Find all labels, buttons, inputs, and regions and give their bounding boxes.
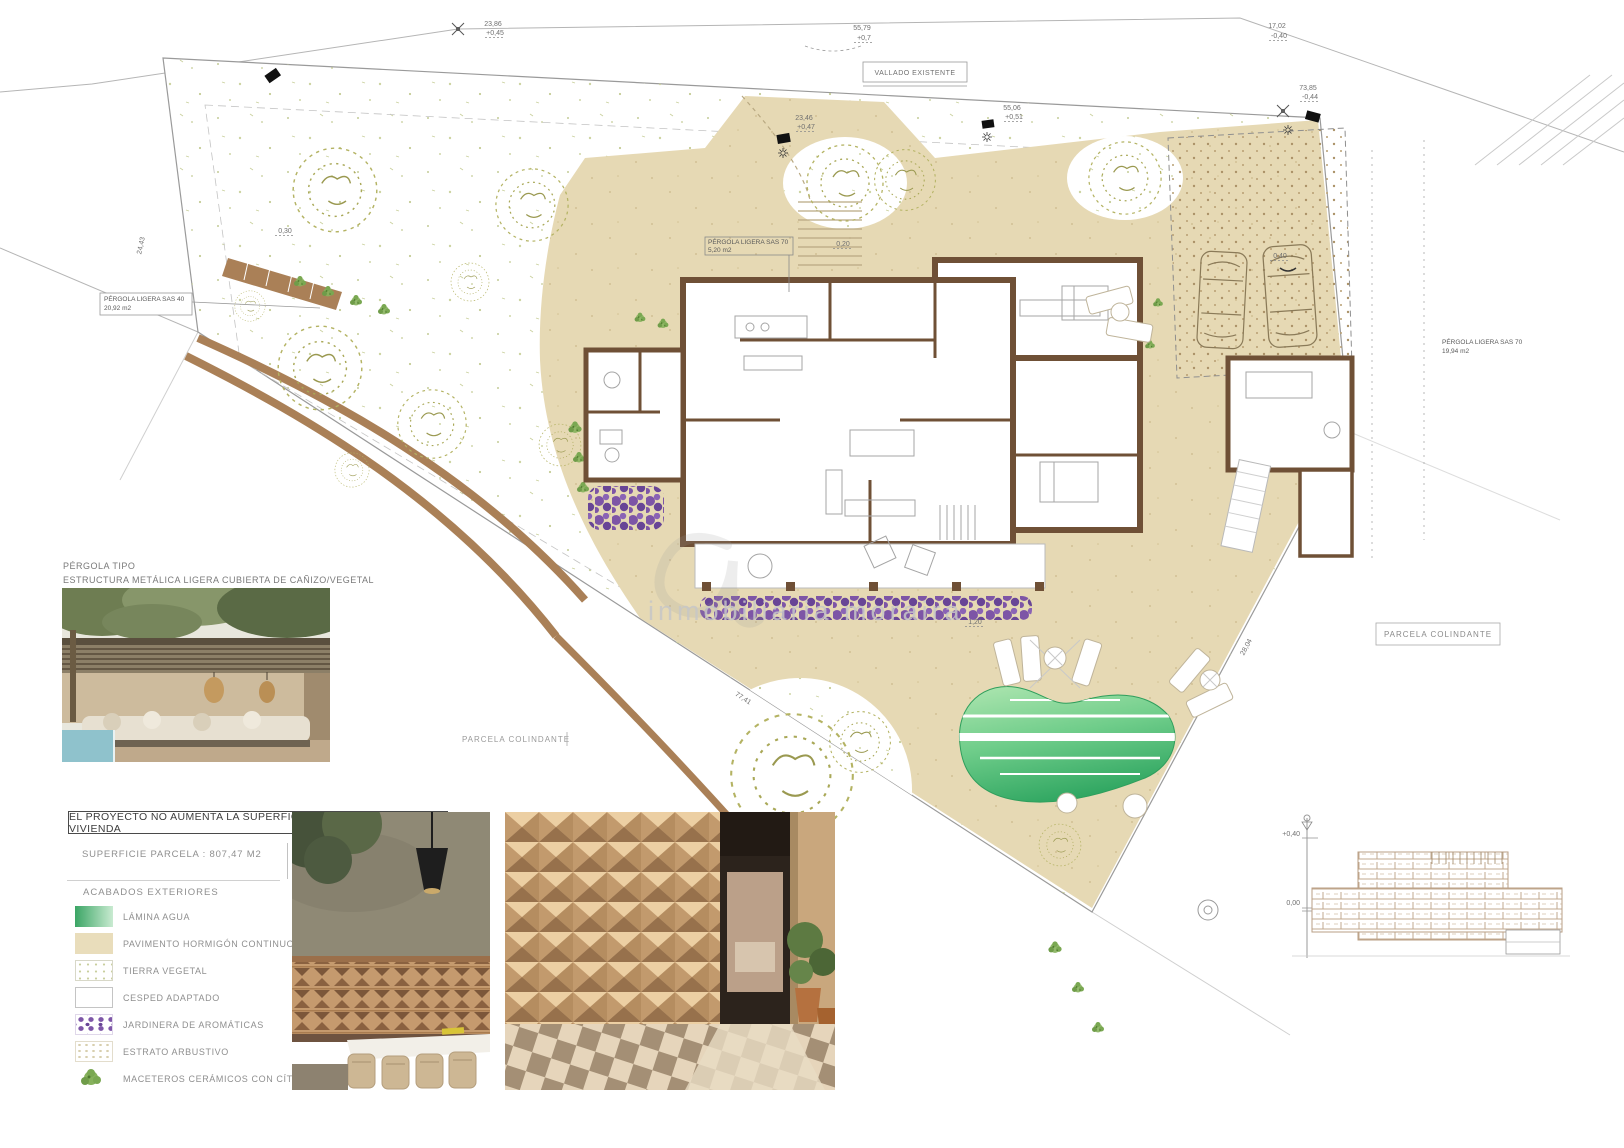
citrus-pot-icon (75, 1068, 113, 1089)
parcela-colindante-left: PARCELA COLINDANTE (462, 735, 570, 744)
parking-area (1168, 128, 1352, 378)
courtyard-photo (292, 812, 490, 1090)
lattice-feature-wall (505, 812, 720, 1024)
soil-swatch (75, 960, 113, 981)
svg-text:20,92 m2: 20,92 m2 (104, 305, 131, 312)
dimension-label: 0,20 (836, 241, 850, 248)
pergola40-label: PÉRGOLA LIGERA SAS 40 (104, 294, 185, 303)
pergola70b-label: PÉRGOLA LIGERA SAS 70 (1442, 337, 1523, 346)
planter-circle (1057, 793, 1077, 813)
planter-circle (1123, 794, 1147, 818)
dimension-label: 77,41 (734, 691, 753, 706)
lattice-wall (292, 962, 490, 1038)
watermark-text: inmobiliaria moraira (648, 596, 964, 626)
svg-text:5,20 m2: 5,20 m2 (708, 247, 732, 254)
lawn-swatch (75, 987, 113, 1008)
annex (1228, 358, 1352, 470)
dimension-label: -0,40 (1271, 33, 1287, 40)
dimension-label: +0,51 (1005, 114, 1023, 121)
dimension-label: +0,7 (857, 35, 871, 42)
bedroom-glimpse (735, 942, 775, 972)
pergola-lounge-photo-art (62, 588, 330, 762)
dimension-label: 0,40 (1273, 253, 1287, 260)
terracotta-pot (795, 988, 821, 1022)
dimension-label: 23,46 (795, 115, 813, 122)
pergola-note: PÉRGOLA TIPO ESTRUCTURA METÁLICA LIGERA … (63, 559, 374, 587)
dimension-label: 73,85 (1299, 85, 1317, 92)
vallado-label: VALLADO EXISTENTE (874, 70, 955, 77)
svg-text:19,94 m2: 19,94 m2 (1442, 348, 1469, 355)
dimension-label: 0,00 (1286, 900, 1300, 907)
dimension-label: +0,47 (797, 124, 815, 131)
tree-trunk (70, 630, 76, 722)
chairs (348, 1052, 476, 1089)
paving-swatch (75, 933, 113, 954)
neighbor-hatch (1475, 75, 1624, 165)
dimension-label: 17,02 (1268, 23, 1286, 30)
dimension-label: -0,44 (1302, 94, 1318, 101)
dimension-label: 0,30 (278, 228, 292, 235)
round-table (1111, 303, 1129, 321)
hallway-photo (505, 812, 835, 1090)
parcela-colindante-right: PARCELA COLINDANTE (1384, 630, 1492, 639)
dimension-label: 1,20 (968, 619, 982, 626)
legend-title: ACABADOS EXTERIORES (83, 887, 219, 898)
superficie-parcela: SUPERFICIE PARCELA : 807,47 M2 (82, 849, 262, 860)
dimension-label: 55,06 (1003, 105, 1021, 112)
seating (82, 711, 310, 747)
shrub-swatch (75, 1041, 113, 1062)
elevation-detail (1292, 815, 1570, 958)
hallway-photo-art (505, 812, 835, 1090)
aromatics-swatch (75, 1014, 113, 1035)
courtyard-photo-art (292, 812, 490, 1090)
dimension-label: 24,43 (136, 236, 147, 255)
dimension-label: +0,45 (486, 30, 504, 37)
legend-divider-horizontal (67, 880, 280, 881)
dimension-label: 55,79 (853, 25, 871, 32)
pool-corner (62, 730, 114, 762)
pergola70-label: PÉRGOLA LIGERA SAS 70 (708, 237, 789, 246)
pergola-lounge-photo (62, 588, 330, 762)
dimension-label: 28,04 (1239, 638, 1253, 657)
site-plan-sheet: inmobiliaria moraira PÉRGOLA LIGERA SAS … (0, 0, 1624, 1148)
pergola-note-line1: PÉRGOLA TIPO (63, 559, 374, 573)
water-swatch (75, 906, 113, 927)
legend-divider-vertical (287, 843, 288, 879)
dimension-label: +0,40 (1282, 831, 1300, 838)
dimension-label: 23,86 (484, 21, 502, 28)
pergola-note-line2: ESTRUCTURA METÁLICA LIGERA CUBIERTA DE C… (63, 573, 374, 587)
